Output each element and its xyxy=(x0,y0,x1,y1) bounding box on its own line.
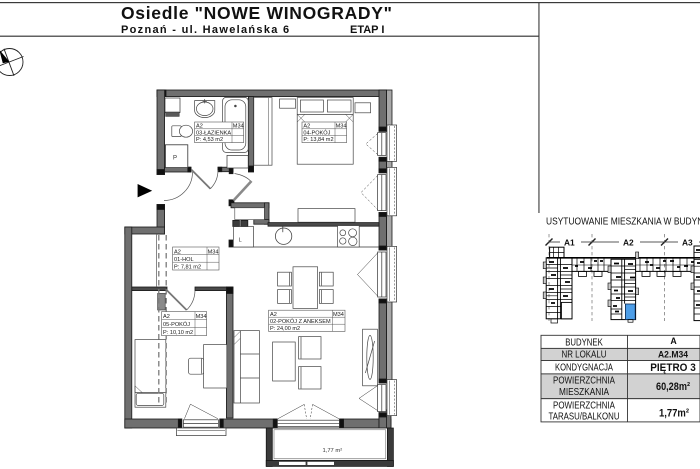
svg-text:60,28m²: 60,28m² xyxy=(656,381,690,393)
svg-text:Osiedle "NOWE WINOGRADY": Osiedle "NOWE WINOGRADY" xyxy=(121,3,393,23)
svg-text:M34: M34 xyxy=(196,314,207,320)
svg-text:MIESZKANIA: MIESZKANIA xyxy=(559,387,609,398)
svg-text:TARASU/BALKONU: TARASU/BALKONU xyxy=(549,412,620,423)
svg-text:M34: M34 xyxy=(336,124,347,130)
svg-text:P: 13,84 m2: P: 13,84 m2 xyxy=(303,137,333,143)
svg-text:PIĘTRO 3: PIĘTRO 3 xyxy=(650,362,696,374)
svg-text:NR LOKALU: NR LOKALU xyxy=(562,350,607,361)
svg-text:P: 10,10 m2: P: 10,10 m2 xyxy=(163,330,193,336)
svg-text:A2: A2 xyxy=(163,314,170,320)
svg-text:L: L xyxy=(239,238,242,244)
svg-text:KONDYGNACJA: KONDYGNACJA xyxy=(555,363,613,374)
svg-text:A2: A2 xyxy=(623,237,634,247)
svg-text:A1: A1 xyxy=(564,237,575,247)
svg-text:A2: A2 xyxy=(303,124,310,130)
svg-text:A2: A2 xyxy=(196,124,203,130)
svg-text:05-POKÓJ: 05-POKÓJ xyxy=(163,321,190,328)
svg-text:BUDYNEK: BUDYNEK xyxy=(565,337,603,348)
svg-text:ETAP I: ETAP I xyxy=(350,24,384,36)
svg-text:01-HOL: 01-HOL xyxy=(174,257,194,263)
svg-text:P: P xyxy=(173,155,177,161)
svg-text:P: 7,81 m2: P: 7,81 m2 xyxy=(174,265,201,271)
svg-text:P: 24,00 m2: P: 24,00 m2 xyxy=(270,326,300,332)
svg-text:POWIERZCHNIA: POWIERZCHNIA xyxy=(553,401,615,412)
svg-text:M34: M34 xyxy=(233,124,244,130)
svg-text:P: 4,53 m2: P: 4,53 m2 xyxy=(196,137,223,143)
svg-text:04-POKÓJ: 04-POKÓJ xyxy=(303,129,330,136)
svg-text:A3: A3 xyxy=(682,237,693,247)
svg-text:POWIERZCHNIA: POWIERZCHNIA xyxy=(553,376,615,387)
svg-text:M34: M34 xyxy=(208,249,219,255)
svg-text:USYTUOWANIE MIESZKANIA W BUDYN: USYTUOWANIE MIESZKANIA W BUDYNKU xyxy=(546,216,700,227)
svg-text:03-ŁAZIENKA: 03-ŁAZIENKA xyxy=(196,130,231,136)
svg-text:02-POKÓJ Z ANEKSEM: 02-POKÓJ Z ANEKSEM xyxy=(270,318,331,325)
svg-text:A: A xyxy=(670,336,677,346)
svg-text:A2: A2 xyxy=(174,249,181,255)
svg-text:A2: A2 xyxy=(270,312,277,318)
svg-text:A2.M34: A2.M34 xyxy=(658,350,688,360)
svg-text:1,77 m²: 1,77 m² xyxy=(323,448,343,454)
svg-text:Poznań - ul. Hawelańska 6: Poznań - ul. Hawelańska 6 xyxy=(121,24,290,36)
svg-text:1,77m²: 1,77m² xyxy=(659,407,689,419)
svg-text:M34: M34 xyxy=(333,312,344,318)
